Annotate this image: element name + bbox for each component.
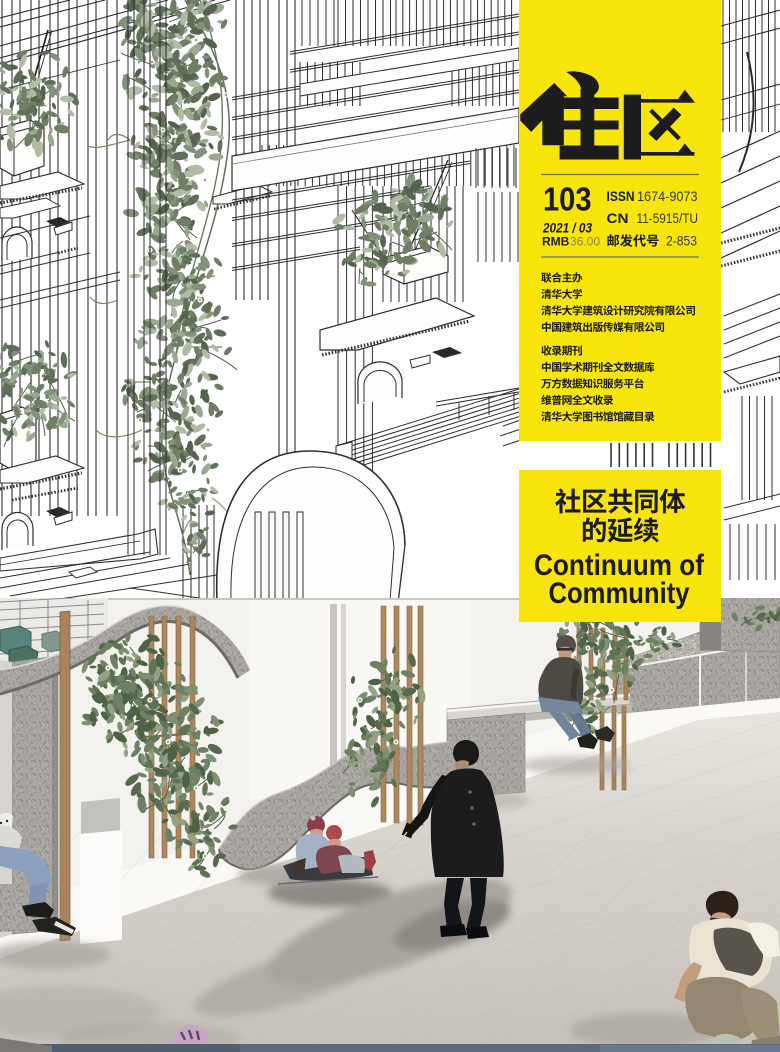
svg-text:1674-9073: 1674-9073 <box>637 189 698 204</box>
svg-text:ISSN: ISSN <box>607 188 635 204</box>
svg-text:RMB: RMB <box>542 235 570 249</box>
svg-text:2-853: 2-853 <box>666 234 697 249</box>
svg-text:11-5915/TU: 11-5915/TU <box>637 211 699 226</box>
svg-text:CN: CN <box>607 210 629 226</box>
svg-text:2021 / 03: 2021 / 03 <box>542 220 592 236</box>
svg-text:36.00: 36.00 <box>570 235 600 249</box>
svg-text:103: 103 <box>543 181 592 218</box>
svg-text:Community: Community <box>549 577 690 610</box>
